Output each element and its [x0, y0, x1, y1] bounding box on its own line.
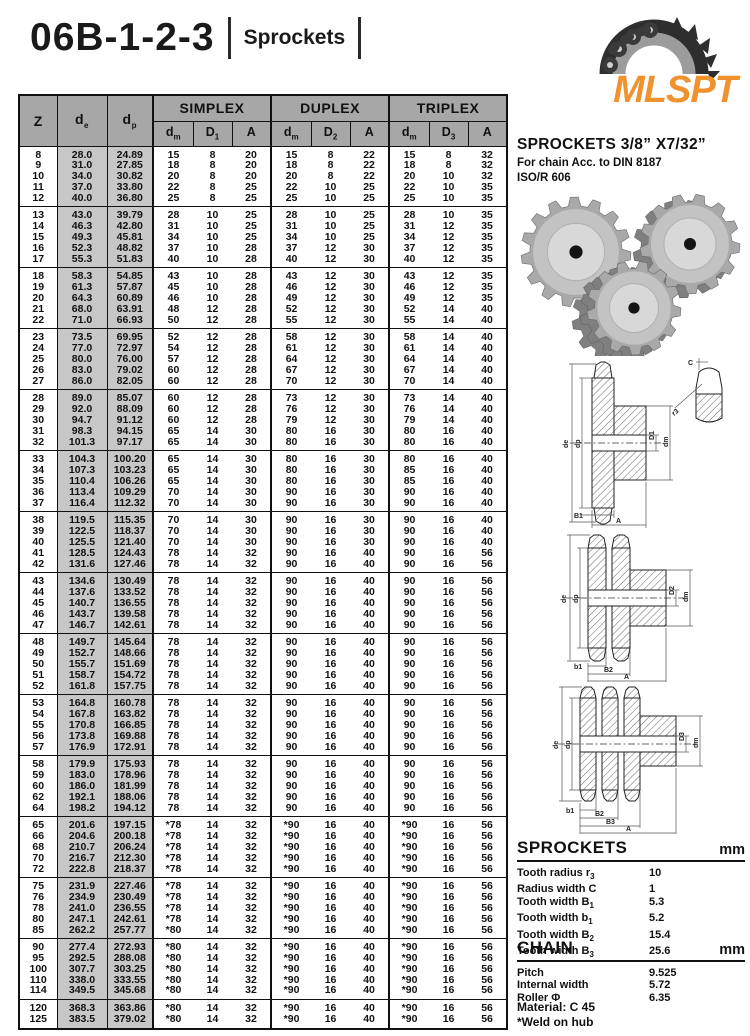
table-cell: 12	[193, 376, 232, 390]
table-cell: 14	[193, 609, 232, 620]
spec-row: Pitch9.525	[517, 967, 745, 979]
table-cell: 90	[389, 609, 429, 620]
table-cell: 71.0	[57, 315, 107, 329]
table-row: 41128.5124.43781432901640901656	[19, 548, 507, 559]
table-cell: 14	[193, 1000, 232, 1014]
table-cell: 12	[311, 315, 350, 329]
table-cell: 25	[389, 193, 429, 207]
table-cell: 28	[19, 390, 57, 404]
table-cell: 16	[429, 853, 468, 864]
table-cell: 90	[19, 939, 57, 953]
table-cell: 139.58	[107, 609, 153, 620]
table-cell: 30	[350, 437, 389, 451]
table-cell: *90	[389, 1000, 429, 1014]
table-cell: 197.15	[107, 817, 153, 831]
svg-text:b1: b1	[574, 664, 582, 671]
table-cell: *90	[271, 878, 311, 892]
table-row: 47146.7142.61781432901640901656	[19, 620, 507, 634]
table-cell: 130.49	[107, 573, 153, 587]
table-cell: 32	[232, 681, 271, 695]
table-cell: *78	[153, 817, 193, 831]
table-cell: *90	[271, 853, 311, 864]
table-cell: 383.5	[57, 1014, 107, 1029]
table-cell: 42	[19, 559, 57, 573]
table-cell: 25	[350, 207, 389, 221]
table-cell: 65	[19, 817, 57, 831]
table-cell: 16	[429, 620, 468, 634]
table-cell: 90	[271, 803, 311, 817]
table-cell: 56	[468, 609, 507, 620]
table-cell: *90	[271, 817, 311, 831]
table-row: 2477.072.97541228611230611440	[19, 343, 507, 354]
table-row: 57176.9172.91781432901640901656	[19, 742, 507, 756]
table-cell: 90	[389, 670, 429, 681]
table-cell: 16	[311, 914, 350, 925]
table-cell: 16	[311, 670, 350, 681]
table-cell: 192.1	[57, 792, 107, 803]
table-cell: 32	[232, 548, 271, 559]
table-cell: 90	[389, 803, 429, 817]
table-cell: 145.64	[107, 634, 153, 648]
table-cell: 78	[153, 695, 193, 709]
table-cell: 8	[193, 193, 232, 207]
table-cell: 16	[311, 512, 350, 526]
table-cell: 32	[232, 634, 271, 648]
table-cell: 30	[350, 254, 389, 268]
svg-text:dm: dm	[683, 592, 690, 603]
row-group: 53164.8160.7878143290164090165654167.816…	[19, 695, 507, 756]
table-cell: 32	[232, 670, 271, 681]
table-cell: 30	[350, 390, 389, 404]
table-cell: 28	[232, 268, 271, 282]
table-cell: 16	[429, 609, 468, 620]
table-cell: 43	[271, 268, 311, 282]
material-note: Material: C 45 *Weld on hub	[517, 1000, 595, 1030]
table-cell: 14	[193, 426, 232, 437]
table-cell: 10	[311, 207, 350, 221]
table-cell: 69.95	[107, 329, 153, 343]
table-cell: 12	[429, 268, 468, 282]
table-cell: 90	[271, 559, 311, 573]
right-panel-heading: SPROCKETS 3/8” X7/32”	[517, 136, 706, 154]
table-cell: 40	[350, 620, 389, 634]
table-row: 90277.4272.93*801432*901640*901656	[19, 939, 507, 953]
table-cell: 40	[350, 817, 389, 831]
svg-text:b1: b1	[566, 808, 574, 815]
table-cell: 368.3	[57, 1000, 107, 1014]
svg-text:dp: dp	[575, 439, 582, 448]
table-cell: 73	[389, 390, 429, 404]
table-cell: 35	[468, 193, 507, 207]
table-cell: 173.8	[57, 731, 107, 742]
table-cell: 32	[232, 985, 271, 999]
table-cell: 16	[429, 559, 468, 573]
svg-text:D3: D3	[679, 732, 686, 741]
table-cell: *90	[271, 939, 311, 953]
table-cell: 94.15	[107, 426, 153, 437]
col-header-dp: dp	[107, 95, 153, 146]
table-cell: *90	[389, 925, 429, 939]
col-header-triplex: TRIPLEX	[389, 95, 507, 121]
table-cell: 30	[350, 512, 389, 526]
table-cell: 70	[271, 376, 311, 390]
table-cell: 16	[429, 681, 468, 695]
table-cell: 90	[389, 695, 429, 709]
table-cell: 14	[193, 878, 232, 892]
table-row: 38119.5115.35701430901630901640	[19, 512, 507, 526]
table-cell: 40	[350, 1000, 389, 1014]
table-row: 1343.039.79281025281025281035	[19, 207, 507, 221]
table-cell: 14	[193, 742, 232, 756]
table-cell: 13	[19, 207, 57, 221]
table-cell: 115.35	[107, 512, 153, 526]
table-cell: 10	[193, 207, 232, 221]
table-row: 114349.5345.68*801432*901640*901656	[19, 985, 507, 999]
table-cell: 78	[153, 634, 193, 648]
spec-value: 5.3	[649, 896, 745, 912]
table-cell: 90	[271, 742, 311, 756]
row-group: 38119.5115.3570143090163090164039122.511…	[19, 512, 507, 573]
table-cell: 56	[468, 853, 507, 864]
table-row: 1858.354.85431028431230431235	[19, 268, 507, 282]
table-row: 828.024.89158201582215832	[19, 146, 507, 160]
table-cell: 14	[193, 634, 232, 648]
svg-text:D1: D1	[649, 431, 656, 440]
table-cell: 78	[153, 670, 193, 681]
table-cell: 90	[389, 548, 429, 559]
table-cell: 16	[429, 1000, 468, 1014]
table-cell: 16	[311, 559, 350, 573]
table-row: 2271.066.93501228551230551440	[19, 315, 507, 329]
table-cell: 14	[193, 573, 232, 587]
divider-bar	[358, 17, 361, 59]
table-cell: 25	[271, 193, 311, 207]
table-cell: 32	[232, 695, 271, 709]
row-group: 58179.9175.9378143290164090165659183.017…	[19, 756, 507, 817]
table-cell: 78	[153, 681, 193, 695]
table-cell: 16	[429, 695, 468, 709]
table-cell: 14	[429, 390, 468, 404]
table-cell: 36.80	[107, 193, 153, 207]
table-cell: 40	[350, 670, 389, 681]
table-cell: 14	[429, 315, 468, 329]
spec-row: Tooth width b15.2	[517, 912, 745, 928]
table-cell: 40	[350, 878, 389, 892]
table-cell: 60	[153, 376, 193, 390]
table-row: 1137.033.8022825221025221035	[19, 182, 507, 193]
svg-text:de: de	[563, 440, 570, 448]
table-row: 65201.6197.15*781432*901640*901656	[19, 817, 507, 831]
table-cell: 32	[232, 803, 271, 817]
table-cell: 16	[429, 914, 468, 925]
table-row: 64198.2194.12781432901640901656	[19, 803, 507, 817]
table-cell: 158.7	[57, 670, 107, 681]
table-cell: 73	[271, 390, 311, 404]
table-cell: 16	[311, 681, 350, 695]
row-group: 48149.7145.6478143290164090165649152.714…	[19, 634, 507, 695]
table-cell: *90	[271, 914, 311, 925]
table-cell: 90	[389, 756, 429, 770]
table-cell: 142.61	[107, 620, 153, 634]
row-group: 2373.569.955212285812305814402477.072.97…	[19, 329, 507, 390]
col-header-duplex: DUPLEX	[271, 95, 389, 121]
table-row: 1755.351.83401028401230401235	[19, 254, 507, 268]
spec-label: Tooth width b1	[517, 912, 649, 928]
table-cell: 70	[153, 512, 193, 526]
row-group: 828.024.89158201582215832931.027.8518820…	[19, 146, 507, 207]
table-cell: 52	[19, 681, 57, 695]
sprockets-spec-title: SPROCKETS	[517, 838, 627, 858]
table-cell: 15	[153, 146, 193, 160]
table-cell: 16	[429, 487, 468, 498]
svg-text:D2: D2	[669, 586, 676, 595]
table-cell: 16	[429, 864, 468, 878]
table-cell: 14	[193, 487, 232, 498]
table-cell: *90	[389, 1014, 429, 1029]
table-cell: 227.46	[107, 878, 153, 892]
table-cell: *90	[271, 1014, 311, 1029]
table-cell: 247.1	[57, 914, 107, 925]
chain-spec-section: CHAIN mm Pitch9.525Internal width5.72Rol…	[517, 938, 745, 1004]
table-cell: 51.83	[107, 254, 153, 268]
table-cell: 78	[153, 573, 193, 587]
table-cell: 32	[232, 878, 271, 892]
table-cell: 78	[153, 742, 193, 756]
table-cell: 40	[350, 634, 389, 648]
table-row: 70216.7212.30*781432*901640*901656	[19, 853, 507, 864]
table-cell: 16	[311, 878, 350, 892]
table-cell: 32	[232, 609, 271, 620]
table-cell: *80	[153, 925, 193, 939]
table-cell: 30	[232, 426, 271, 437]
table-cell: 40	[350, 548, 389, 559]
table-cell: 56	[468, 756, 507, 770]
table-cell: 90	[389, 559, 429, 573]
svg-text:de: de	[561, 595, 568, 603]
row-group: 2889.085.076012287312307314402992.088.09…	[19, 390, 507, 451]
table-cell: 116.4	[57, 498, 107, 512]
table-cell: 90	[389, 487, 429, 498]
table-cell: 90	[389, 681, 429, 695]
table-cell: 90	[389, 620, 429, 634]
table-cell: 60	[153, 390, 193, 404]
row-group: 90277.4272.93*801432*901640*90165695292.…	[19, 939, 507, 1000]
table-cell: 56	[468, 792, 507, 803]
table-cell: 56	[468, 803, 507, 817]
table-cell: 40	[350, 559, 389, 573]
table-cell: 40	[350, 925, 389, 939]
table-cell: 80	[271, 451, 311, 465]
table-cell: 32	[232, 864, 271, 878]
table-cell: 125	[19, 1014, 57, 1029]
table-cell: 56	[468, 670, 507, 681]
chain-spec-items: Pitch9.525Internal width5.72Roller Φ6.35	[517, 967, 745, 1004]
table-cell: 198.2	[57, 803, 107, 817]
table-cell: 28	[232, 390, 271, 404]
table-cell: *90	[389, 914, 429, 925]
table-cell: 160.78	[107, 695, 153, 709]
table-row: 56173.8169.88781432901640901656	[19, 731, 507, 742]
table-cell: 179.9	[57, 756, 107, 770]
table-cell: 40	[468, 451, 507, 465]
table-cell: 30	[232, 498, 271, 512]
table-cell: 14	[193, 1014, 232, 1029]
table-cell: 25	[232, 193, 271, 207]
table-cell: 32	[19, 437, 57, 451]
table-cell: 90	[389, 573, 429, 587]
table-cell: 40	[350, 914, 389, 925]
table-cell: 32	[232, 914, 271, 925]
sprockets-spec-unit: mm	[719, 842, 745, 858]
table-cell: 85	[19, 925, 57, 939]
spec-value: 6.35	[649, 992, 745, 1004]
table-cell: 16	[311, 853, 350, 864]
table-cell: 16	[429, 731, 468, 742]
table-cell: 40	[468, 390, 507, 404]
table-cell: 277.4	[57, 939, 107, 953]
table-cell: 28	[232, 315, 271, 329]
svg-text:dp: dp	[573, 594, 580, 603]
table-cell: 40	[350, 573, 389, 587]
table-row: 125383.5379.02*801432*901640*901656	[19, 1014, 507, 1029]
table-cell: 16	[311, 426, 350, 437]
table-cell: 80	[389, 451, 429, 465]
table-cell: 109.29	[107, 487, 153, 498]
table-cell: 14	[193, 437, 232, 451]
table-cell: 86.0	[57, 376, 107, 390]
table-cell: *78	[153, 853, 193, 864]
table-cell: 56	[468, 548, 507, 559]
table-row: 43134.6130.49781432901640901656	[19, 573, 507, 587]
table-cell: 14	[193, 548, 232, 559]
table-cell: 14	[193, 512, 232, 526]
table-cell: 154.72	[107, 670, 153, 681]
table-cell: 22	[350, 146, 389, 160]
table-cell: 40	[468, 376, 507, 390]
table-cell: 8	[19, 146, 57, 160]
table-row: 58179.9175.93781432901640901656	[19, 756, 507, 770]
table-cell: 16	[311, 792, 350, 803]
table-cell: 43.0	[57, 207, 107, 221]
table-cell: 10	[193, 254, 232, 268]
table-cell: *90	[389, 985, 429, 999]
table-cell: 16	[429, 512, 468, 526]
table-cell: 16	[311, 437, 350, 451]
table-cell: 56	[468, 634, 507, 648]
table-cell: *90	[271, 985, 311, 999]
table-cell: 90	[271, 620, 311, 634]
col-header-dm: dm	[153, 121, 193, 146]
table-cell: 15	[389, 146, 429, 160]
table-cell: 90	[271, 609, 311, 620]
table-cell: 12	[311, 254, 350, 268]
table-row: 931.027.85188201882218832	[19, 160, 507, 171]
table-cell: 90	[271, 695, 311, 709]
table-cell: 112.32	[107, 498, 153, 512]
table-cell: 85.07	[107, 390, 153, 404]
table-cell: 222.8	[57, 864, 107, 878]
table-cell: 363.86	[107, 1000, 153, 1014]
table-cell: 40	[468, 498, 507, 512]
table-cell: 40	[350, 864, 389, 878]
table-cell: 30	[232, 451, 271, 465]
table-cell: 90	[389, 634, 429, 648]
table-cell: 56	[468, 914, 507, 925]
table-row: 85262.2257.77*801432*901640*901656	[19, 925, 507, 939]
table-cell: 14	[193, 792, 232, 803]
table-cell: 32	[232, 1000, 271, 1014]
table-cell: *78	[153, 878, 193, 892]
table-cell: 12	[429, 254, 468, 268]
table-cell: 30	[232, 512, 271, 526]
table-cell: 40	[468, 426, 507, 437]
table-cell: 89.0	[57, 390, 107, 404]
table-cell: 48	[19, 634, 57, 648]
table-cell: 30	[232, 437, 271, 451]
table-cell: 212.30	[107, 853, 153, 864]
col-header-dm: dm	[271, 121, 311, 146]
table-cell: 56	[468, 573, 507, 587]
table-row: 72222.8218.37*781432*901640*901656	[19, 864, 507, 878]
page-title: 06B-1-2-3	[30, 16, 215, 60]
table-cell: *90	[389, 817, 429, 831]
table-cell: 40	[350, 792, 389, 803]
table-row: 3094.791.12601228791230791440	[19, 415, 507, 426]
table-cell: 16	[429, 985, 468, 999]
table-cell: 16	[429, 498, 468, 512]
table-cell: *90	[271, 1000, 311, 1014]
svg-text:B2: B2	[604, 667, 613, 674]
sprocket-photo-bore	[628, 302, 639, 313]
col-header-a: A	[232, 121, 271, 146]
table-cell: 113.4	[57, 487, 107, 498]
row-group: 33104.3100.2065143080163080164034107.310…	[19, 451, 507, 512]
col-header-dm: dm	[389, 121, 429, 146]
table-cell: 104.3	[57, 451, 107, 465]
table-cell: 16	[311, 742, 350, 756]
material-line: Material: C 45	[517, 1000, 595, 1015]
table-cell: 16	[429, 803, 468, 817]
table-cell: 40	[468, 512, 507, 526]
col-header-d1: D1	[193, 121, 232, 146]
table-cell: 36	[19, 487, 57, 498]
table-cell: 78	[153, 803, 193, 817]
table-cell: 12	[193, 329, 232, 343]
sprocket-photo-bore	[569, 245, 582, 258]
table-cell: 28	[389, 207, 429, 221]
table-cell: 8	[311, 146, 350, 160]
table-header: Z de dp SIMPLEX DUPLEX TRIPLEX dm D1 A d…	[19, 95, 507, 146]
svg-text:C: C	[688, 360, 693, 367]
table-row: 2064.360.89461028491230491235	[19, 293, 507, 304]
table-cell: 23	[19, 329, 57, 343]
table-cell: 66.93	[107, 315, 153, 329]
table-cell: 114	[19, 985, 57, 999]
table-cell: 98.3	[57, 426, 107, 437]
table-cell: 128.5	[57, 548, 107, 559]
table-cell: 25	[153, 193, 193, 207]
table-cell: 14	[193, 864, 232, 878]
table-cell: 146.7	[57, 620, 107, 634]
table-cell: 134.6	[57, 573, 107, 587]
svg-text:B1: B1	[574, 513, 583, 520]
table-cell: 12	[311, 390, 350, 404]
spec-value: 1	[649, 883, 745, 895]
table-cell: 15	[271, 146, 311, 160]
table-cell: 14	[193, 681, 232, 695]
sprocket-photos	[512, 190, 748, 356]
svg-text:A: A	[624, 674, 629, 681]
